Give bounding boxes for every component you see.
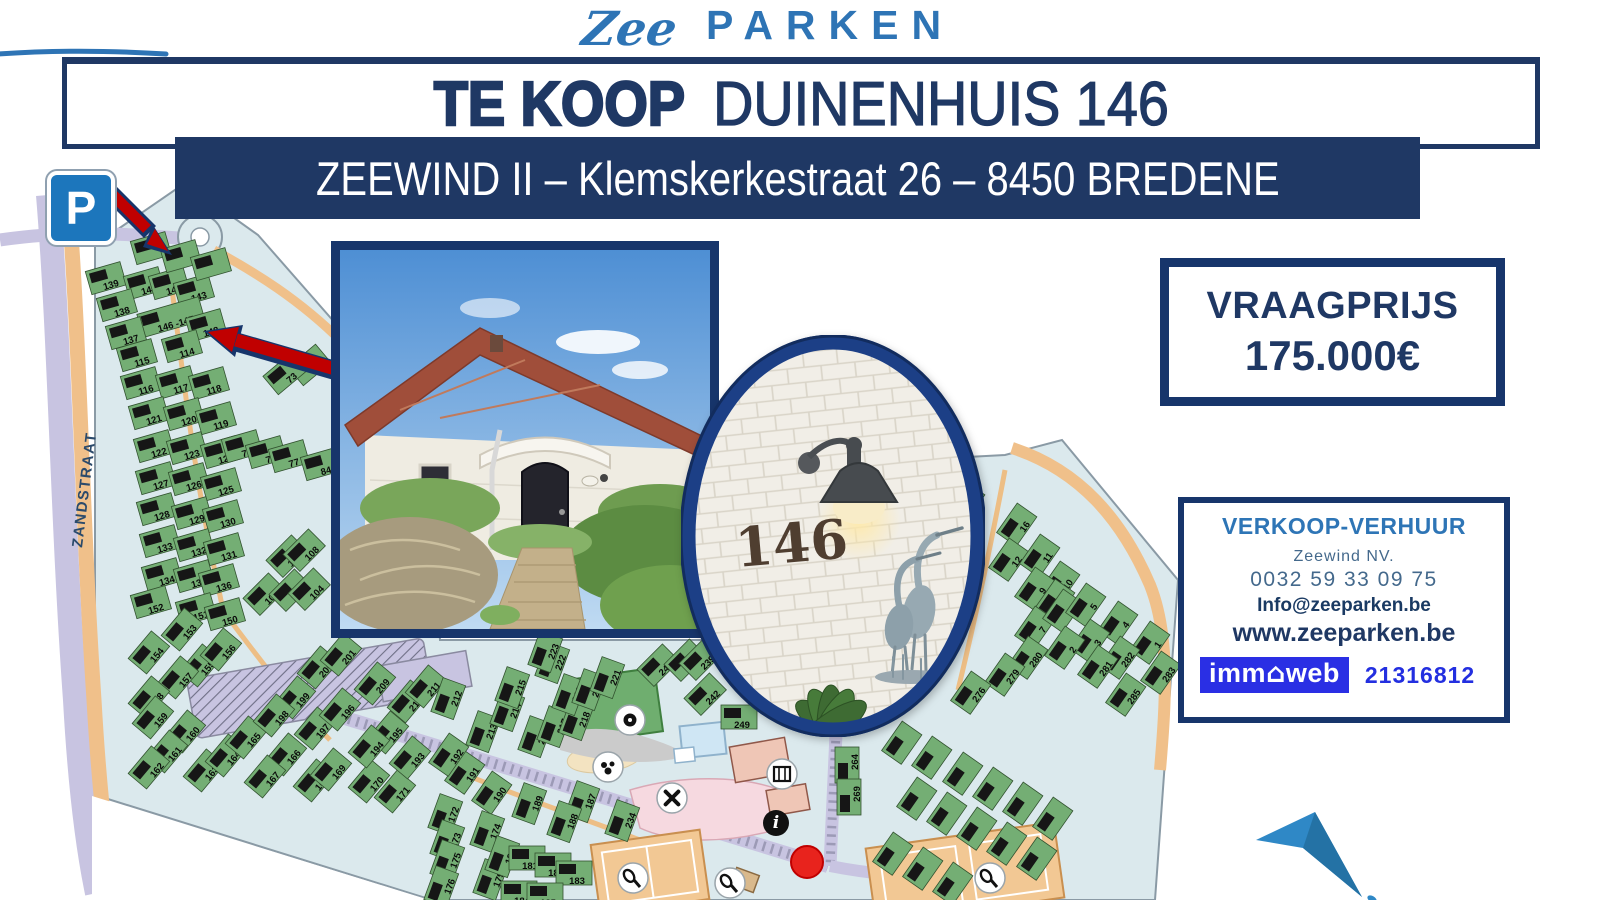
svg-text:264: 264 [850, 753, 861, 770]
house-number-photo: 146 [681, 335, 985, 737]
sale-label: TE KOOP [433, 70, 684, 139]
title-line: TE KOOP DUINENHUIS 146 [433, 69, 1168, 140]
title-banner: TE KOOP DUINENHUIS 146 [62, 57, 1540, 149]
immoweb-logo-post: web [1286, 658, 1340, 688]
house-number: 146 [733, 506, 851, 580]
contact-box: VERKOOP-VERHUUR Zeewind NV. 0032 59 33 0… [1178, 497, 1510, 723]
contact-phone: 0032 59 33 09 75 [1184, 568, 1504, 592]
immoweb-logo-pre: imm [1209, 658, 1266, 688]
amenity-pond-icon [593, 752, 623, 782]
corner-arrow-icon [1220, 770, 1390, 900]
amenity-food-icon [657, 783, 687, 813]
amenity-info-icon: i [763, 810, 789, 836]
contact-email: Info@zeeparken.be [1184, 595, 1504, 617]
parking-sign-icon: P [47, 171, 115, 245]
svg-text:269: 269 [852, 786, 863, 802]
price-amount: 175.000€ [1245, 332, 1420, 380]
parking-sign-letter: P [66, 181, 97, 235]
map-parcel: 264 [835, 747, 861, 783]
contact-company: Zeewind NV. [1184, 548, 1504, 566]
house-photo-illustration [340, 250, 710, 629]
amenity-shop-icon [767, 759, 797, 789]
contact-website: www.zeeparken.be [1184, 619, 1504, 648]
flyer: 139145144143138146 -14714813711411511611… [0, 0, 1600, 900]
svg-text:183: 183 [569, 876, 585, 887]
price-box: VRAAGPRIJS 175.000€ [1160, 258, 1505, 406]
immoweb-reference: 21316812 [1365, 662, 1475, 689]
immoweb-house-icon: ⌂ [1266, 658, 1286, 689]
amenity-tennis-icon [975, 863, 1005, 893]
oval-illustration: 146 [681, 335, 985, 737]
address-banner: ZEEWIND II – Klemskerkestraat 26 – 8450 … [175, 137, 1420, 219]
price-label: VRAAGPRIJS [1206, 285, 1458, 328]
contact-heading: VERKOOP-VERHUUR [1184, 513, 1504, 540]
map-parcel: 185 [527, 883, 563, 900]
house-photo [331, 241, 719, 638]
property-name: DUINENHUIS 146 [713, 70, 1169, 139]
amenity-tennis-icon [715, 868, 745, 898]
address-text: ZEEWIND II – Klemskerkestraat 26 – 8450 … [316, 151, 1280, 206]
logo: ZeePARKEN [0, 2, 1530, 61]
amenity-soccer-icon [615, 705, 645, 735]
immoweb-row: imm⌂web 21316812 [1184, 657, 1504, 693]
location-dot [791, 846, 823, 878]
logo-script: Zee [572, 2, 694, 61]
immoweb-logo: imm⌂web [1200, 657, 1349, 693]
logo-wordmark: PARKEN [706, 2, 954, 49]
plaza-zone [630, 779, 780, 840]
amenity-tennis-icon [618, 863, 648, 893]
map-parcel: 269 [837, 779, 863, 815]
svg-text:i: i [773, 813, 779, 833]
